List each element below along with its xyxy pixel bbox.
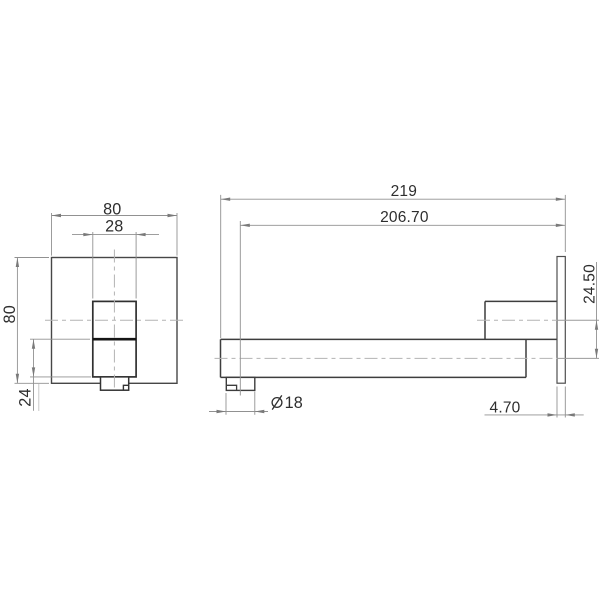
svg-text:28: 28 — [105, 218, 123, 236]
svg-text:24: 24 — [17, 388, 35, 406]
svg-text:18: 18 — [285, 394, 303, 412]
svg-text:4.70: 4.70 — [490, 400, 521, 417]
svg-text:219: 219 — [391, 183, 417, 200]
svg-text:80: 80 — [103, 201, 121, 219]
svg-text:24.50: 24.50 — [581, 264, 598, 304]
svg-text:80: 80 — [1, 305, 19, 323]
svg-text:206.70: 206.70 — [380, 209, 429, 226]
